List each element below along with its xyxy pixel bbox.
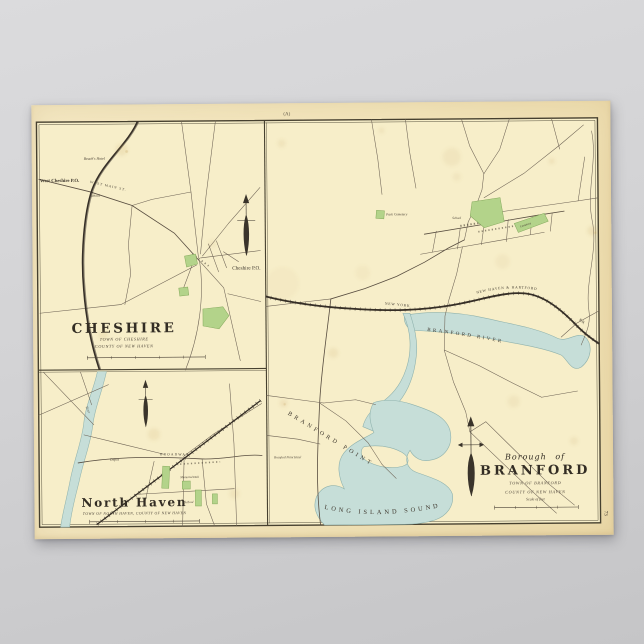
west-cheshire-po-label: West Cheshire P.O.: [40, 179, 79, 184]
school-label: School: [90, 194, 100, 198]
branford-town-line: TOWN OF BRANFORD: [509, 480, 561, 485]
branford-scale-label: Scale of feet: [526, 497, 546, 501]
point-hotel-label: Branford Point Hotel: [274, 455, 301, 459]
branford-title-prefix: Borough of: [504, 452, 566, 461]
plate-number: 73: [603, 511, 608, 517]
branford-title: BRANFORD: [480, 463, 591, 479]
cheshire-title: CHESHIRE: [72, 320, 177, 337]
park-cemetery-label: Park Cemetery: [385, 212, 408, 216]
north-haven-title: North Haven: [81, 495, 187, 510]
branford-county-line: COUNTY OF NEW HAVEN: [505, 489, 565, 494]
plate-mark: (A): [283, 112, 290, 117]
cheshire-county-line: COUNTY OF NEW HAVEN: [95, 343, 154, 348]
memorial-hall-label: Memorial Hall: [179, 475, 199, 479]
product-backdrop: Beach's Hotel West Cheshire P.O. School …: [0, 0, 644, 644]
beachs-hotel-label: Beach's Hotel: [84, 157, 105, 161]
broadway-label: BROADWAY: [160, 452, 190, 456]
cheshire-po-label: Cheshire P.O.: [232, 265, 260, 271]
poster: Beach's Hotel West Cheshire P.O. School …: [31, 101, 613, 540]
depot-label: Depot: [109, 458, 120, 462]
map-sheet: Beach's Hotel West Cheshire P.O. School …: [31, 101, 613, 540]
school-label: School: [452, 216, 461, 220]
